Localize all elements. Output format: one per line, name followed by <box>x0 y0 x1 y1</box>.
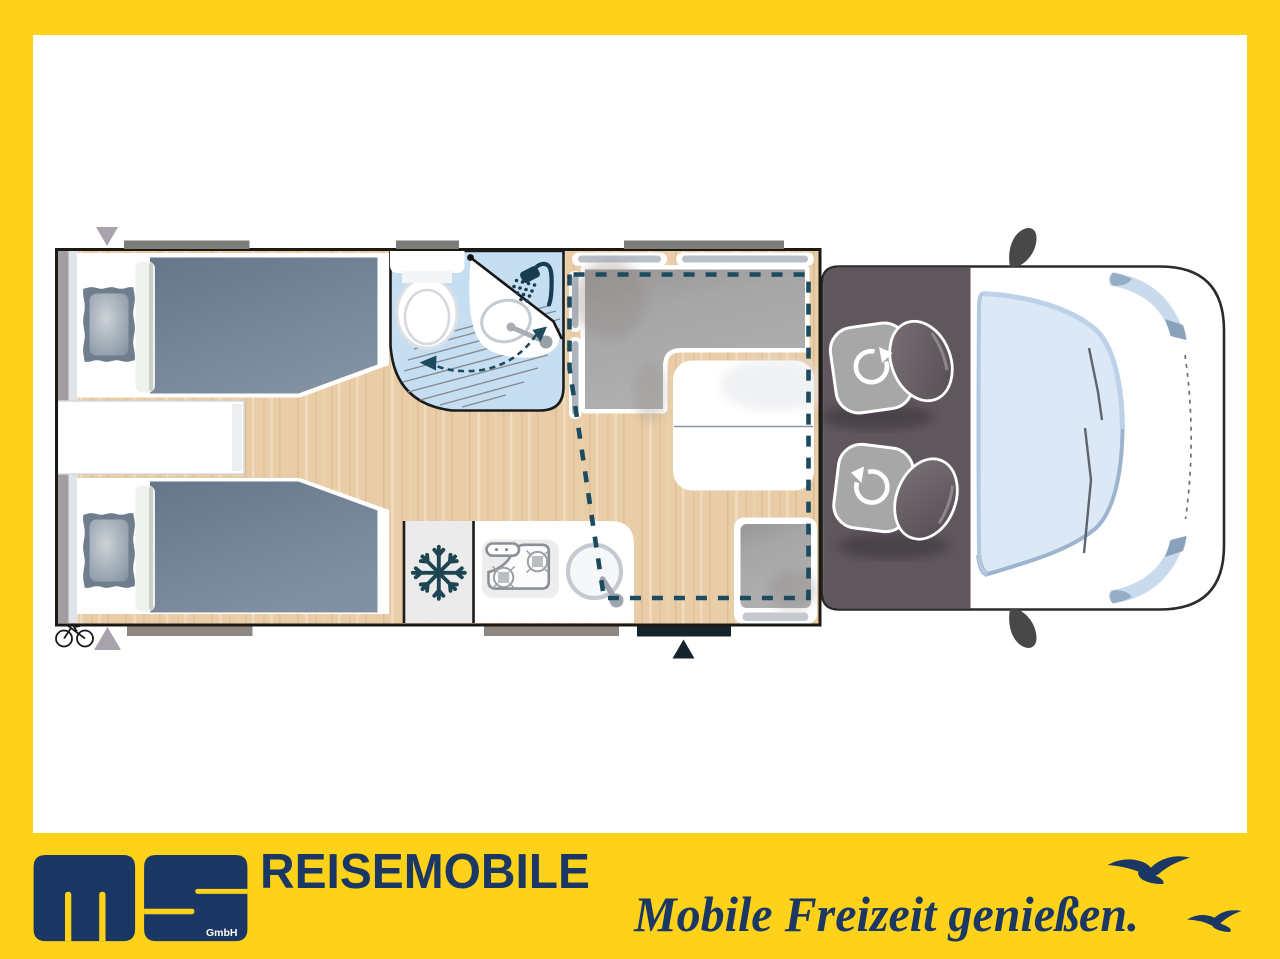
svg-text:Mobile Freizeit genießen.: Mobile Freizeit genießen. <box>633 887 1139 942</box>
svg-text:GmbH: GmbH <box>206 927 238 939</box>
svg-text:REISEMOBILE: REISEMOBILE <box>260 845 590 899</box>
